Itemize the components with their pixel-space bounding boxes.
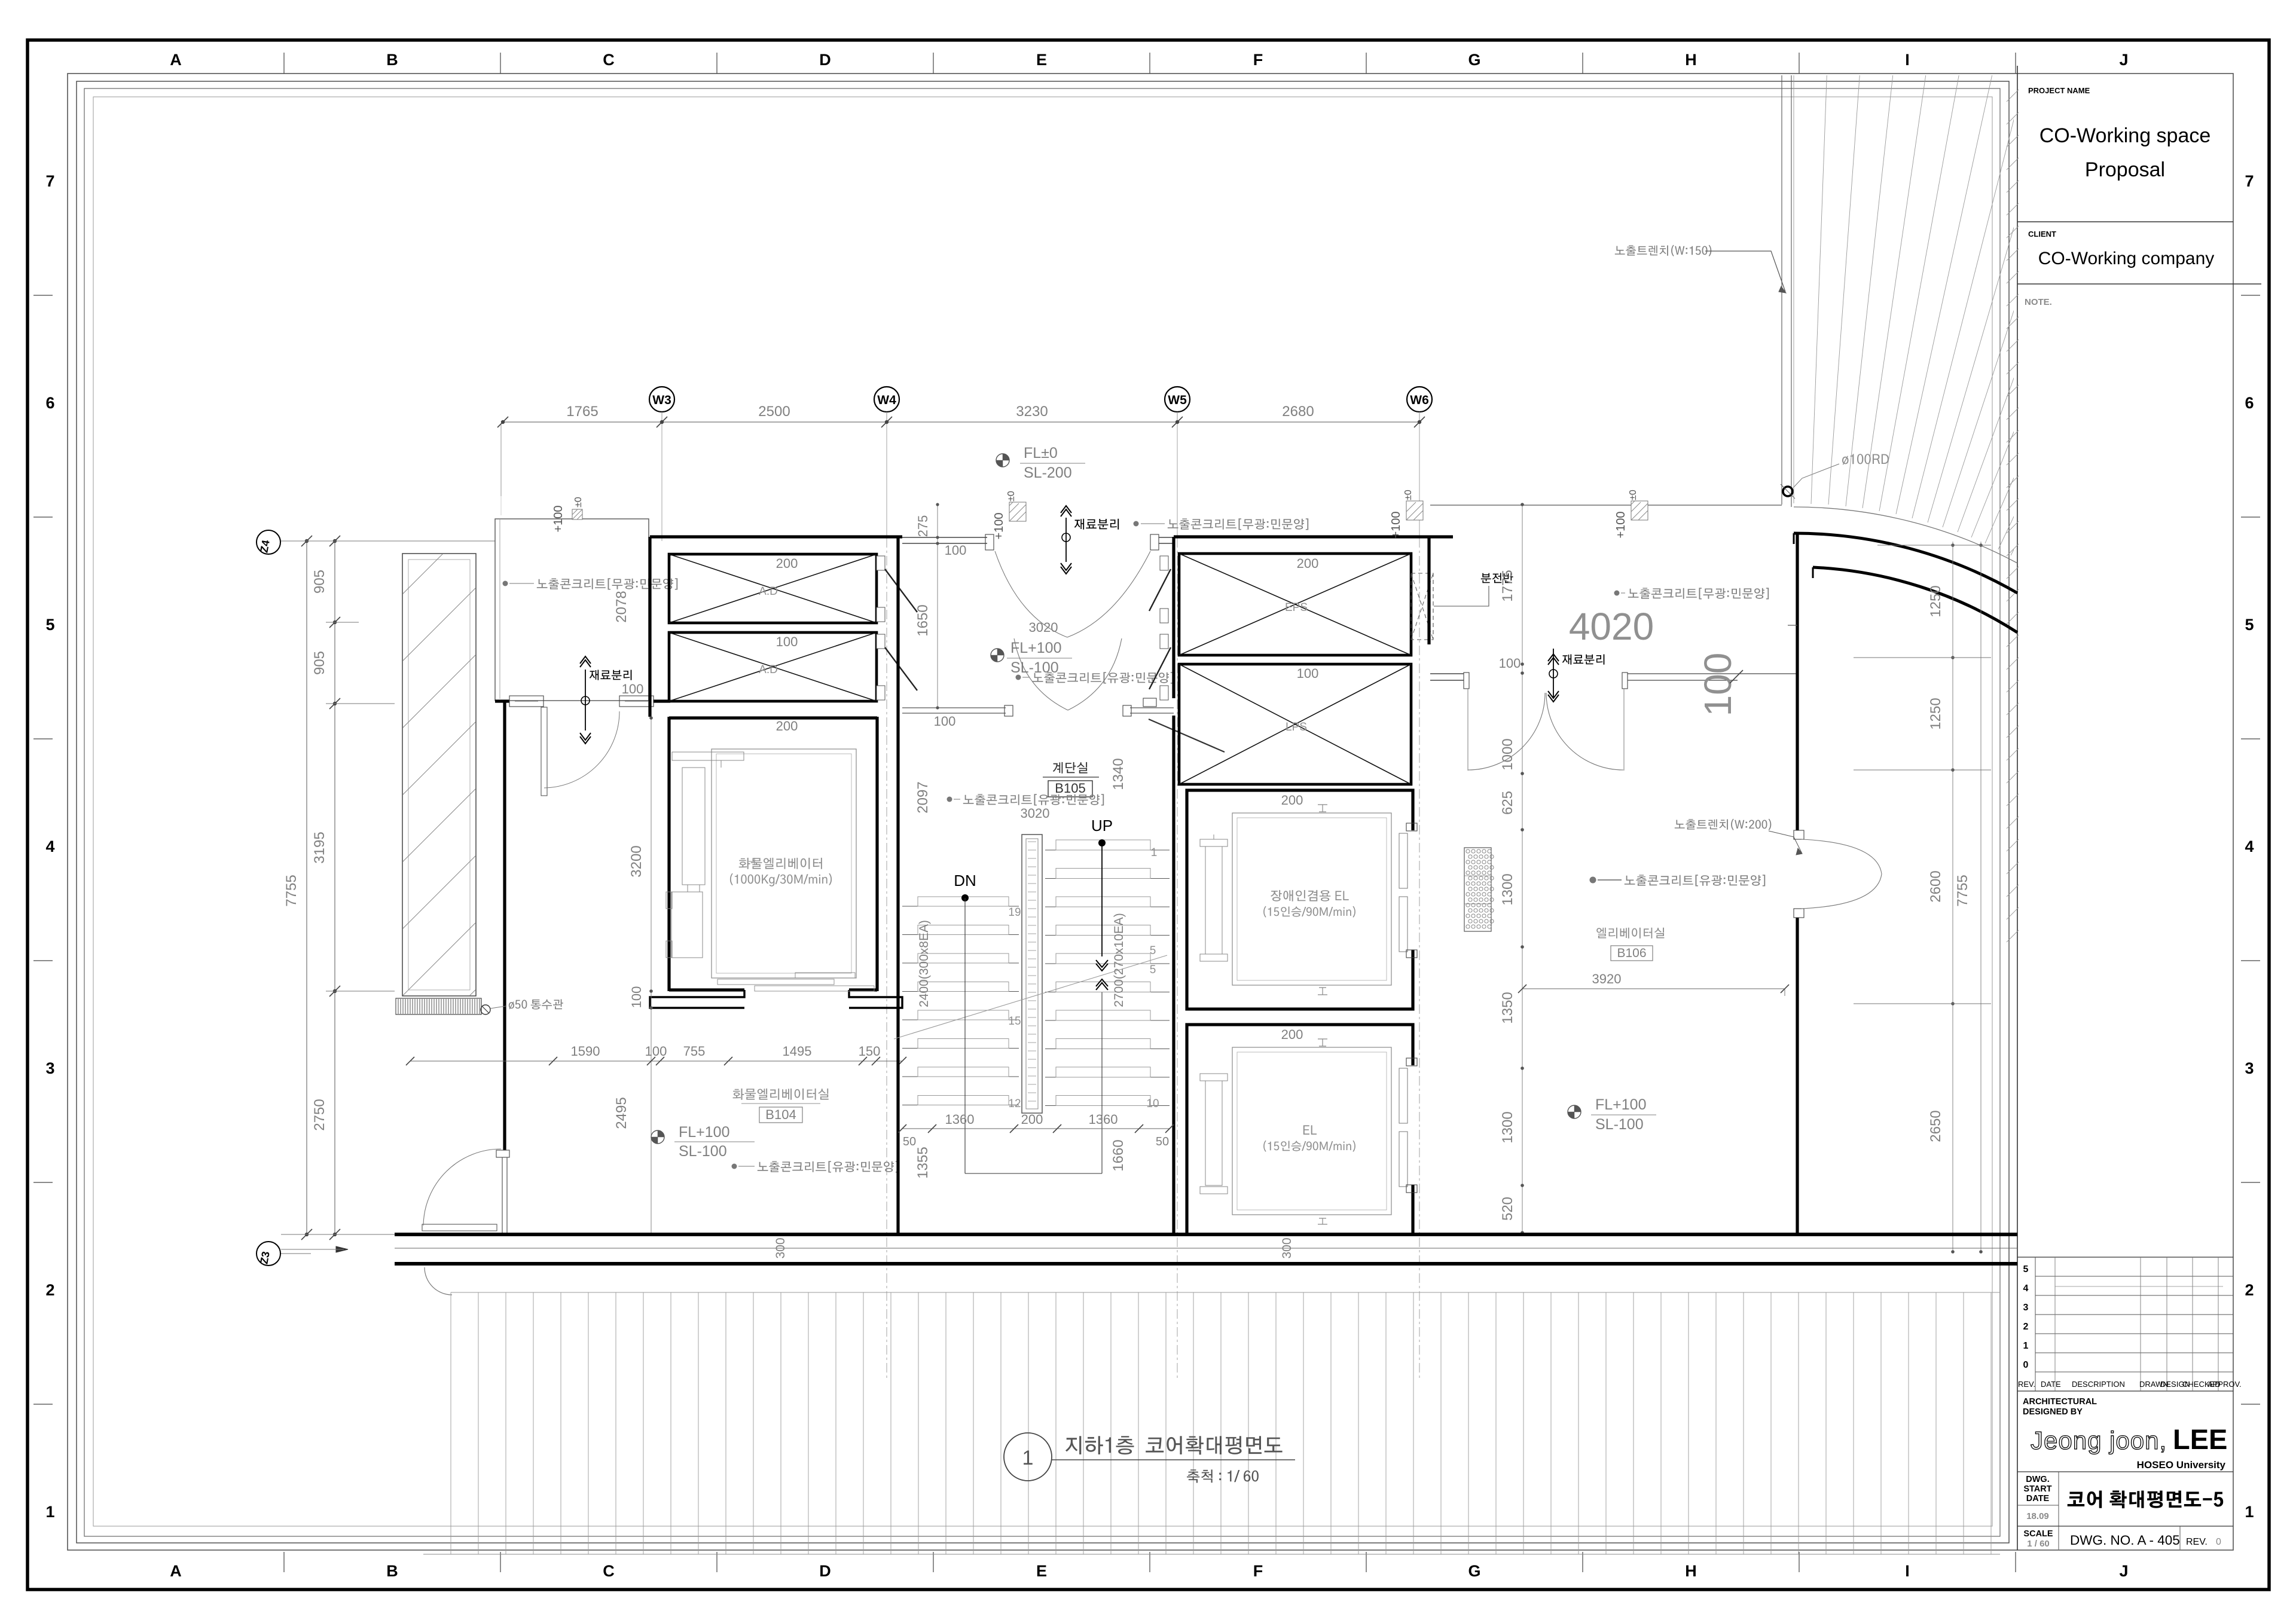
svg-text:1000: 1000 — [1500, 738, 1516, 770]
svg-text:15: 15 — [1008, 1015, 1021, 1028]
svg-text:C: C — [603, 1562, 615, 1580]
svg-text:7: 7 — [2245, 172, 2254, 190]
svg-text:A.D: A.D — [759, 664, 778, 676]
svg-text:FL+100: FL+100 — [679, 1124, 730, 1141]
svg-text:905: 905 — [312, 651, 328, 675]
svg-text:5: 5 — [1150, 945, 1156, 957]
svg-text:LEE: LEE — [2173, 1423, 2227, 1455]
svg-text:2650: 2650 — [1928, 1110, 1944, 1142]
svg-text:E: E — [1036, 1562, 1047, 1580]
svg-text:1: 1 — [1022, 1447, 1034, 1469]
svg-text:SL-100: SL-100 — [1010, 659, 1059, 676]
svg-text:19: 19 — [1008, 906, 1021, 919]
svg-text:I: I — [1905, 1562, 1910, 1580]
svg-text:HOSEO University: HOSEO University — [2137, 1459, 2226, 1471]
svg-text:100: 100 — [1696, 653, 1739, 717]
svg-text:B: B — [386, 51, 398, 69]
svg-text:+100: +100 — [1390, 511, 1403, 538]
svg-text:1300: 1300 — [1500, 873, 1516, 905]
svg-text:4: 4 — [45, 838, 54, 855]
svg-text:100: 100 — [776, 634, 798, 649]
svg-text:W4: W4 — [877, 393, 896, 407]
svg-text:1765: 1765 — [566, 404, 598, 420]
svg-text:C: C — [603, 51, 615, 69]
svg-text:2: 2 — [2023, 1322, 2029, 1332]
svg-text:G: G — [1468, 51, 1480, 69]
svg-text:5: 5 — [2023, 1264, 2029, 1274]
svg-text:DESIGNED BY: DESIGNED BY — [2023, 1407, 2083, 1417]
svg-text:D: D — [819, 51, 831, 69]
svg-text:4: 4 — [2245, 838, 2254, 855]
svg-text:CO-Working space: CO-Working space — [2039, 124, 2211, 147]
svg-text:1495: 1495 — [783, 1044, 812, 1059]
svg-text:2: 2 — [45, 1281, 54, 1299]
svg-text:CO-Working company: CO-Working company — [2038, 249, 2215, 268]
svg-text:4: 4 — [2023, 1283, 2029, 1294]
svg-text:5: 5 — [2245, 616, 2254, 634]
svg-text:Jeong joon,: Jeong joon, — [2031, 1426, 2167, 1454]
svg-text:G: G — [1468, 1562, 1480, 1580]
svg-text:SL-100: SL-100 — [679, 1143, 727, 1160]
svg-text:J: J — [2119, 1562, 2128, 1580]
svg-text:F: F — [1253, 51, 1263, 69]
svg-text:APPROV.: APPROV. — [2208, 1380, 2242, 1389]
svg-text:4020: 4020 — [1569, 605, 1654, 648]
svg-text:SL-200: SL-200 — [1024, 464, 1072, 481]
svg-text:W5: W5 — [1168, 393, 1187, 407]
svg-text:100: 100 — [622, 681, 644, 696]
svg-text:1250: 1250 — [1928, 698, 1944, 729]
svg-text:100: 100 — [1499, 656, 1521, 671]
svg-text:3200: 3200 — [628, 845, 645, 877]
svg-text:CLIENT: CLIENT — [2028, 230, 2056, 239]
svg-text:275: 275 — [915, 515, 930, 537]
svg-text:B105: B105 — [1055, 781, 1085, 796]
svg-text:EPS: EPS — [1285, 601, 1308, 614]
svg-text:0: 0 — [2023, 1360, 2029, 1370]
svg-text:B104: B104 — [765, 1107, 796, 1122]
svg-text:±0: ±0 — [1006, 491, 1016, 502]
svg-text:1650: 1650 — [915, 604, 931, 636]
svg-text:W6: W6 — [1410, 393, 1429, 407]
svg-text:100: 100 — [1297, 666, 1319, 681]
svg-text:±0: ±0 — [1403, 490, 1413, 500]
svg-text:W3: W3 — [652, 393, 671, 407]
svg-text:2680: 2680 — [1282, 404, 1314, 420]
svg-text:1 / 60: 1 / 60 — [2027, 1539, 2050, 1549]
svg-text:3: 3 — [2023, 1303, 2029, 1313]
svg-text:LPS: LPS — [1286, 721, 1307, 733]
svg-text:2750: 2750 — [312, 1099, 328, 1130]
svg-text:300: 300 — [774, 1237, 787, 1258]
svg-text:DWG.: DWG. — [2026, 1475, 2049, 1484]
svg-text:PROJECT NAME: PROJECT NAME — [2028, 86, 2090, 95]
svg-text:150: 150 — [859, 1044, 881, 1059]
svg-text:2495: 2495 — [613, 1097, 630, 1129]
svg-text:625: 625 — [1500, 791, 1516, 815]
svg-text:6: 6 — [45, 394, 54, 412]
svg-text:100: 100 — [945, 543, 967, 558]
svg-text:2700(270x10EA): 2700(270x10EA) — [1112, 913, 1126, 1007]
svg-text:520: 520 — [1500, 1197, 1516, 1221]
svg-text:DWG. NO. A - 405: DWG. NO. A - 405 — [2070, 1533, 2180, 1548]
svg-text:NOTE.: NOTE. — [2025, 297, 2052, 307]
svg-text:ARCHITECTURAL: ARCHITECTURAL — [2023, 1397, 2097, 1407]
svg-text:2078: 2078 — [613, 591, 630, 622]
svg-text:A.D: A.D — [759, 585, 778, 598]
svg-text:3020: 3020 — [1029, 620, 1058, 635]
svg-text:1300: 1300 — [1500, 1111, 1516, 1143]
svg-text:3920: 3920 — [1592, 971, 1622, 986]
svg-text:50: 50 — [1156, 1135, 1169, 1148]
svg-text:FL±0: FL±0 — [1024, 445, 1058, 461]
svg-text:B106: B106 — [1617, 946, 1646, 960]
svg-text:DATE: DATE — [2041, 1380, 2061, 1389]
svg-text:2097: 2097 — [915, 781, 931, 813]
svg-text:1: 1 — [2023, 1341, 2029, 1351]
svg-text:3230: 3230 — [1016, 404, 1048, 420]
svg-text:200: 200 — [1021, 1112, 1043, 1127]
svg-text:Z4: Z4 — [258, 539, 271, 554]
svg-text:±0: ±0 — [1628, 490, 1638, 500]
svg-text:REV.: REV. — [2186, 1537, 2208, 1547]
svg-text:1: 1 — [1151, 846, 1158, 859]
svg-text:A: A — [170, 1562, 182, 1580]
svg-text:10: 10 — [1146, 1098, 1159, 1110]
svg-text:3020: 3020 — [1021, 806, 1050, 821]
svg-text:6: 6 — [2245, 394, 2254, 412]
svg-text:3: 3 — [45, 1059, 54, 1077]
svg-text:±0: ±0 — [573, 497, 584, 508]
svg-text:+100: +100 — [552, 505, 565, 532]
svg-text:1: 1 — [2245, 1503, 2254, 1521]
svg-text:1775: 1775 — [1500, 570, 1516, 601]
svg-text:I: I — [1905, 51, 1910, 69]
svg-text:Z3: Z3 — [258, 1251, 271, 1265]
svg-text:100: 100 — [645, 1044, 667, 1059]
svg-text:1: 1 — [45, 1503, 54, 1521]
svg-text:2600: 2600 — [1928, 870, 1944, 902]
svg-text:200: 200 — [776, 556, 798, 571]
svg-text:1660: 1660 — [1110, 1139, 1126, 1171]
svg-text:J: J — [2119, 51, 2128, 69]
svg-text:7755: 7755 — [283, 875, 300, 906]
svg-text:12: 12 — [1008, 1098, 1021, 1110]
svg-text:5: 5 — [1150, 964, 1156, 976]
svg-text:E: E — [1036, 51, 1047, 69]
svg-text:200: 200 — [1281, 1027, 1303, 1042]
svg-text:DN: DN — [954, 872, 976, 890]
svg-text:1350: 1350 — [1500, 992, 1516, 1023]
svg-text:7755: 7755 — [1955, 875, 1971, 906]
svg-text:SL-100: SL-100 — [1595, 1116, 1644, 1133]
svg-text:1590: 1590 — [571, 1044, 600, 1059]
svg-text:Proposal: Proposal — [2085, 158, 2165, 181]
svg-text:+100: +100 — [1614, 511, 1628, 538]
svg-text:2500: 2500 — [758, 404, 790, 420]
svg-text:DATE: DATE — [2026, 1494, 2050, 1503]
svg-text:100: 100 — [629, 986, 644, 1008]
svg-text:DESCRIPTION: DESCRIPTION — [2072, 1380, 2125, 1389]
svg-text:200: 200 — [776, 719, 798, 733]
svg-text:200: 200 — [1297, 556, 1319, 571]
svg-text:2: 2 — [2245, 1281, 2254, 1299]
svg-text:A: A — [170, 51, 182, 69]
svg-text:F: F — [1253, 1562, 1263, 1580]
svg-text:1360: 1360 — [1089, 1112, 1118, 1127]
svg-text:3195: 3195 — [312, 832, 328, 863]
svg-text:50: 50 — [903, 1135, 916, 1148]
svg-text:REV.: REV. — [2018, 1380, 2035, 1389]
svg-text:SCALE: SCALE — [2023, 1529, 2053, 1539]
svg-text:B: B — [386, 1562, 398, 1580]
svg-text:H: H — [1685, 51, 1697, 69]
svg-text:1355: 1355 — [915, 1147, 931, 1178]
svg-text:1250: 1250 — [1928, 585, 1944, 617]
svg-text:0: 0 — [2216, 1537, 2221, 1547]
svg-text:200: 200 — [1281, 793, 1303, 808]
svg-text:18.09: 18.09 — [2026, 1511, 2049, 1521]
svg-text:300: 300 — [1280, 1237, 1294, 1258]
svg-text:100: 100 — [934, 714, 956, 729]
svg-text:5: 5 — [45, 616, 54, 634]
svg-text:H: H — [1685, 1562, 1697, 1580]
svg-text:755: 755 — [683, 1044, 706, 1059]
svg-text:START: START — [2023, 1484, 2051, 1494]
svg-text:1360: 1360 — [945, 1112, 975, 1127]
svg-text:UP: UP — [1091, 817, 1113, 835]
svg-text:7: 7 — [45, 172, 54, 190]
svg-text:D: D — [819, 1562, 831, 1580]
svg-text:FL+100: FL+100 — [1595, 1096, 1647, 1113]
svg-text:+100: +100 — [993, 512, 1006, 539]
svg-text:2400(300x8EA): 2400(300x8EA) — [917, 920, 931, 1007]
svg-text:905: 905 — [312, 570, 328, 594]
svg-text:1340: 1340 — [1110, 758, 1126, 790]
svg-text:3: 3 — [2245, 1059, 2254, 1077]
